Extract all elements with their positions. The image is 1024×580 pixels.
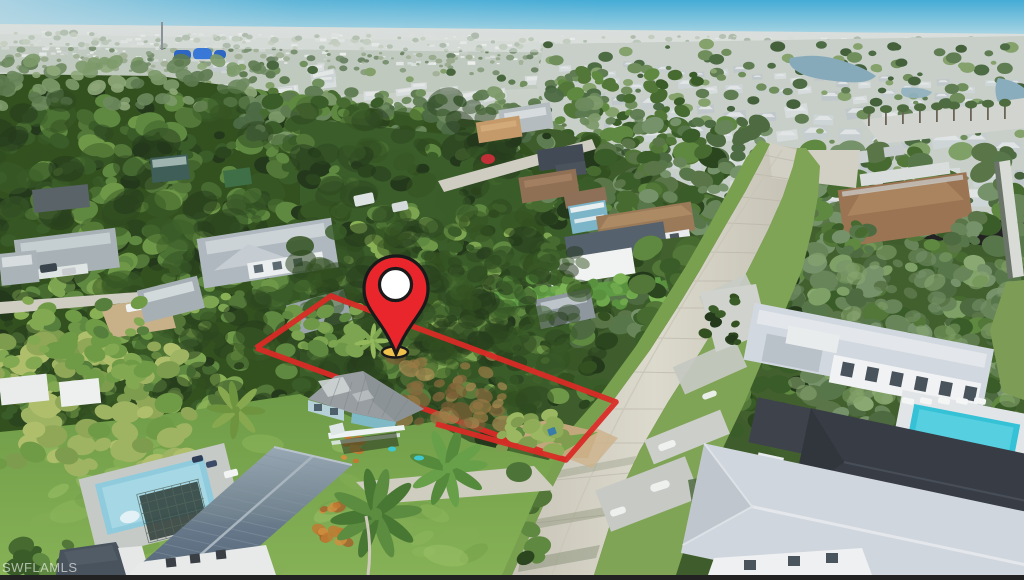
svg-text:SWFLAMLS: SWFLAMLS (2, 560, 78, 575)
